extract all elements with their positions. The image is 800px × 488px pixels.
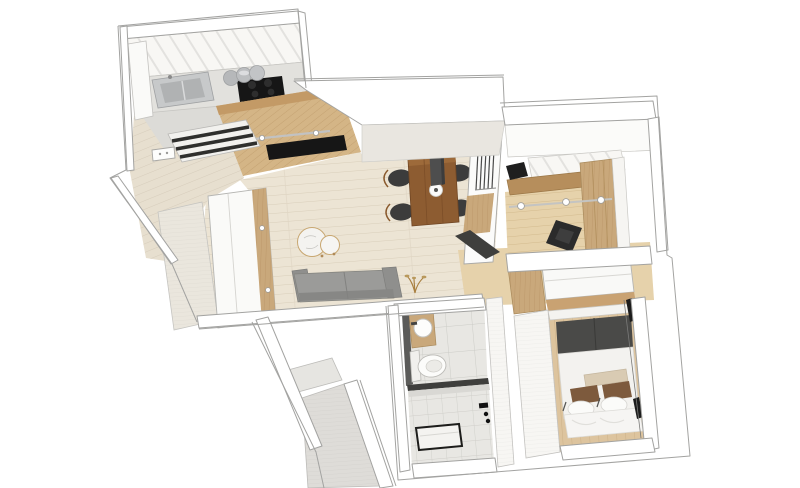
partition-wood-grain <box>463 193 494 235</box>
rail-knob <box>259 135 264 140</box>
cooktop-burner <box>248 81 256 89</box>
cooktop-burner <box>268 89 275 96</box>
plant-leaf <box>412 277 416 279</box>
wardrobe-knob <box>266 288 271 293</box>
canister <box>250 66 265 81</box>
shower-tray <box>416 424 462 450</box>
office-wardrobe-grain <box>580 159 618 254</box>
wardrobe-knob <box>260 226 265 231</box>
canister-highlight <box>239 71 249 76</box>
shower-control <box>486 419 490 423</box>
canister <box>224 71 239 86</box>
apartment-floor-plan-render: 3D apartment floor plan — top-down axono… <box>0 0 800 488</box>
switch-dot <box>166 152 168 154</box>
table-leg <box>333 253 336 256</box>
basin <box>414 319 432 337</box>
office-right-wall <box>648 117 668 252</box>
plate-center <box>434 188 438 192</box>
shower-control <box>484 412 488 416</box>
plant-leaf <box>422 276 427 279</box>
coffee-table-small <box>321 236 340 255</box>
living-top-wall-face <box>362 121 505 162</box>
table-leg <box>321 255 324 258</box>
faucet <box>168 75 172 79</box>
cooktop-burner <box>264 79 272 87</box>
monitor <box>506 162 528 180</box>
rail-knob <box>313 130 318 135</box>
basin-faucet <box>411 322 417 326</box>
office-back-wall <box>505 119 659 157</box>
switch-dot <box>159 153 161 155</box>
rail-light-bulb <box>598 197 605 204</box>
shower-mixer <box>479 402 488 408</box>
rail-light-bulb <box>563 199 570 206</box>
cooktop-burner <box>252 91 259 98</box>
plant-leaf <box>405 275 410 278</box>
floor-plan-stage: 3D apartment floor plan — top-down axono… <box>0 0 800 488</box>
rail-light-bulb <box>518 203 525 210</box>
wall-switch <box>152 147 175 161</box>
